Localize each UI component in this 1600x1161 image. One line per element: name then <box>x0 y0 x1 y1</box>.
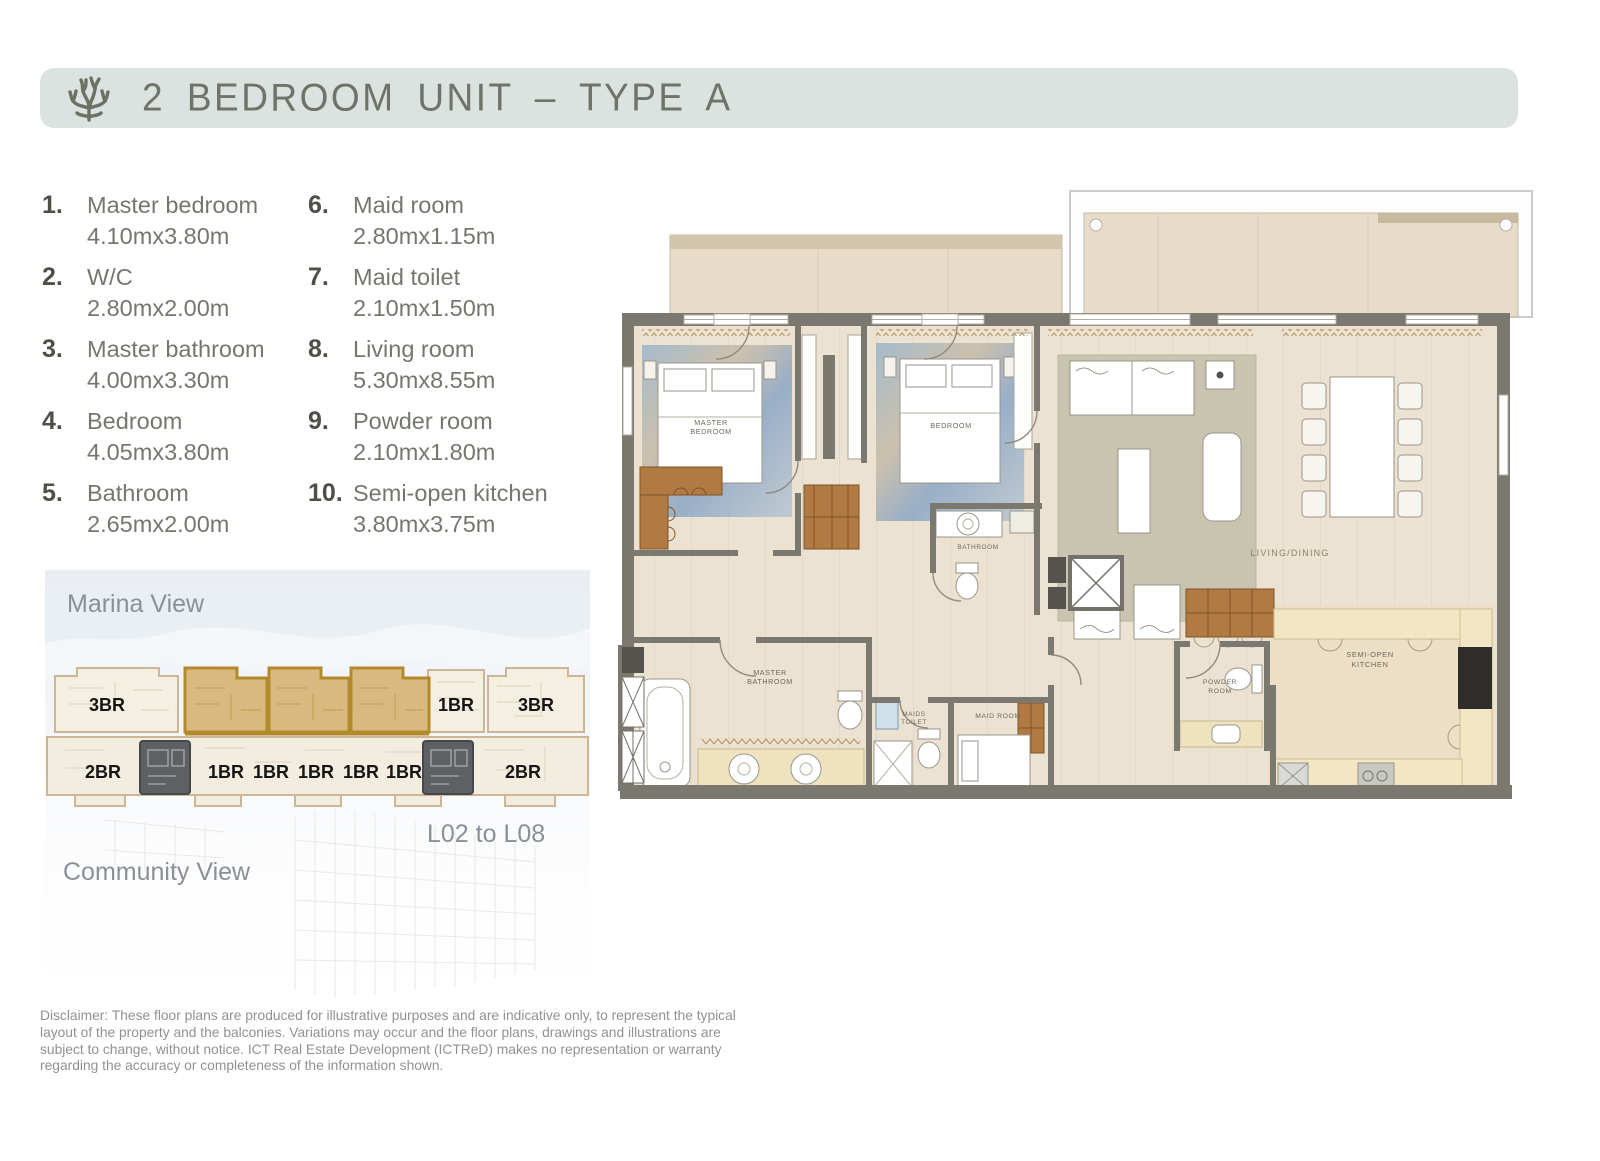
room-list-item: 8. Living room5.30mx8.55m <box>308 334 548 396</box>
unit-label: 1BR <box>208 762 244 782</box>
unit-label: 3BR <box>89 695 125 715</box>
plan-label: MAIDS <box>902 711 925 718</box>
page-header: 2 BEDROOM UNIT – TYPE A <box>40 68 1518 128</box>
plan-label: BEDROOM <box>930 421 971 430</box>
room-number: 1. <box>42 190 87 252</box>
unit-label: 2BR <box>85 762 121 782</box>
levels-label: L02 to L08 <box>427 820 545 849</box>
unit-label: 1BR <box>298 762 334 782</box>
coral-icon <box>66 73 112 123</box>
elevator-shaft <box>1048 557 1122 609</box>
room-list-item: 10. Semi-open kitchen3.80mx3.75m <box>308 478 548 540</box>
room-number: 10. <box>308 478 353 540</box>
room-list-item: 1. Master bedroom4.10mx3.80m <box>42 190 265 252</box>
room-list-item: 3. Master bathroom4.00mx3.30m <box>42 334 265 396</box>
room-name: Bathroom <box>87 480 189 506</box>
room-dimension: 2.80mx1.15m <box>353 221 495 252</box>
unit-label: 1BR <box>438 695 474 715</box>
room-dimension: 2.80mx2.00m <box>87 293 229 324</box>
plan-label: MAID ROOM <box>975 713 1020 720</box>
marina-view-label: Marina View <box>67 590 204 619</box>
room-number: 7. <box>308 262 353 324</box>
page-title: 2 BEDROOM UNIT – TYPE A <box>142 76 733 120</box>
plan-dressing-corridor <box>802 335 862 549</box>
balcony-left <box>670 235 1062 317</box>
unit-label: 2BR <box>505 762 541 782</box>
room-name: Maid room <box>353 192 464 218</box>
unit-label: 1BR <box>386 762 422 782</box>
room-list-item: 6. Maid room2.80mx1.15m <box>308 190 548 252</box>
room-dimension: 2.10mx1.80m <box>353 437 495 468</box>
room-name: Living room <box>353 336 474 362</box>
plan-label: BATHROOM <box>747 677 793 686</box>
room-dimension: 5.30mx8.55m <box>353 365 495 396</box>
room-number: 3. <box>42 334 87 396</box>
room-dimension: 4.00mx3.30m <box>87 365 265 396</box>
room-name: Master bedroom <box>87 192 258 218</box>
room-name: Powder room <box>353 408 493 434</box>
unit-label: 1BR <box>343 762 379 782</box>
room-list-item: 5. Bathroom2.65mx2.00m <box>42 478 265 540</box>
highlighted-units <box>185 668 429 733</box>
brochure-page: 2 BEDROOM UNIT – TYPE A 1. Master bedroo… <box>0 0 1600 1161</box>
room-dimension: 2.65mx2.00m <box>87 509 229 540</box>
disclaimer-text: Disclaimer: These floor plans are produc… <box>40 1008 746 1075</box>
plan-label: BATHROOM <box>957 544 998 551</box>
unit-label: 1BR <box>253 762 289 782</box>
plan-label: LIVING/DINING <box>1250 548 1329 558</box>
room-list-item: 7. Maid toilet2.10mx1.50m <box>308 262 548 324</box>
room-legend-column-1: 1. Master bedroom4.10mx3.80m 2. W/C2.80m… <box>42 190 265 550</box>
room-name: Master bathroom <box>87 336 265 362</box>
room-number: 4. <box>42 406 87 468</box>
floor-plan: MASTER BEDROOM BEDROOM BATHROOM LIVING/D… <box>618 185 1563 825</box>
room-name: Bedroom <box>87 408 182 434</box>
room-list-item: 2. W/C2.80mx2.00m <box>42 262 265 324</box>
room-list-item: 9. Powder room2.10mx1.80m <box>308 406 548 468</box>
room-name: Maid toilet <box>353 264 460 290</box>
room-legend-column-2: 6. Maid room2.80mx1.15m 7. Maid toilet2.… <box>308 190 548 550</box>
room-dimension: 4.10mx3.80m <box>87 221 258 252</box>
plan-label: BEDROOM <box>690 427 731 436</box>
plan-label: MASTER <box>694 418 728 427</box>
unit-label: 3BR <box>518 695 554 715</box>
service-shafts <box>622 647 644 783</box>
room-number: 8. <box>308 334 353 396</box>
community-view-label: Community View <box>63 858 250 887</box>
plan-label: MASTER <box>753 668 787 677</box>
room-name: Semi-open kitchen <box>353 480 548 506</box>
plan-label: POWDER <box>1203 679 1237 686</box>
room-dimension: 2.10mx1.50m <box>353 293 495 324</box>
room-list-item: 4. Bedroom4.05mx3.80m <box>42 406 265 468</box>
plan-label: SEMI-OPEN <box>1346 650 1394 659</box>
plan-label: KITCHEN <box>1351 660 1388 669</box>
plan-label: ROOM <box>1208 688 1232 695</box>
plan-label: TOILET <box>901 719 927 726</box>
room-number: 2. <box>42 262 87 324</box>
room-number: 9. <box>308 406 353 468</box>
room-name: W/C <box>87 264 133 290</box>
room-dimension: 3.80mx3.75m <box>353 509 548 540</box>
room-number: 6. <box>308 190 353 252</box>
building-locator: 3BR 1BR 3BR 2BR 1BR 1BR 1BR 1BR 1BR 2BR … <box>45 570 590 1000</box>
room-dimension: 4.05mx3.80m <box>87 437 229 468</box>
balcony-right <box>1070 191 1532 317</box>
insulation-hatch <box>642 329 1482 336</box>
locator-graphic: 3BR 1BR 3BR 2BR 1BR 1BR 1BR 1BR 1BR 2BR <box>45 570 590 1000</box>
room-number: 5. <box>42 478 87 540</box>
